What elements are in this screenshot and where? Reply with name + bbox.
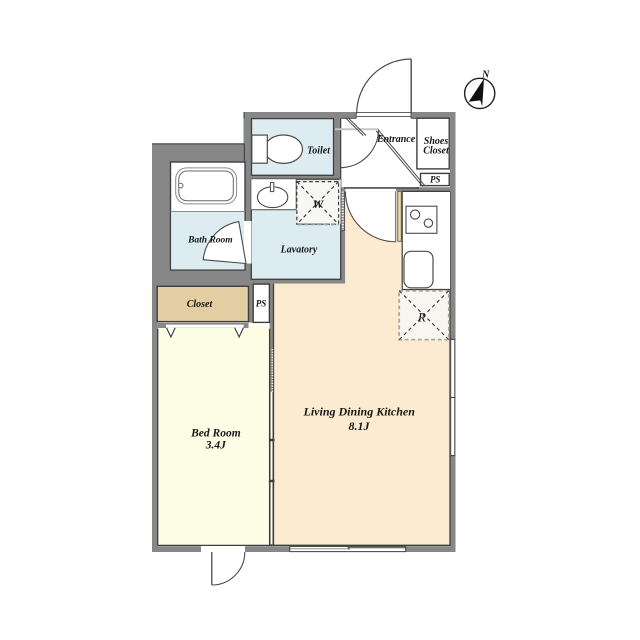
svg-text:Bed Room: Bed Room (190, 428, 241, 440)
svg-text:R: R (417, 309, 426, 324)
svg-text:Bath Room: Bath Room (187, 236, 233, 246)
svg-text:3.4J: 3.4J (205, 439, 227, 451)
svg-text:Closet: Closet (423, 146, 450, 157)
svg-text:N: N (481, 70, 490, 81)
svg-text:8.1J: 8.1J (349, 419, 371, 433)
svg-text:Toilet: Toilet (307, 145, 331, 156)
svg-text:W: W (313, 197, 325, 211)
svg-text:PS: PS (256, 299, 267, 309)
svg-text:Living Dining Kitchen: Living Dining Kitchen (303, 405, 416, 419)
svg-text:PS: PS (430, 175, 441, 185)
svg-text:Entrance: Entrance (376, 134, 416, 145)
svg-text:Closet: Closet (187, 299, 214, 310)
svg-text:Lavatory: Lavatory (280, 244, 318, 255)
